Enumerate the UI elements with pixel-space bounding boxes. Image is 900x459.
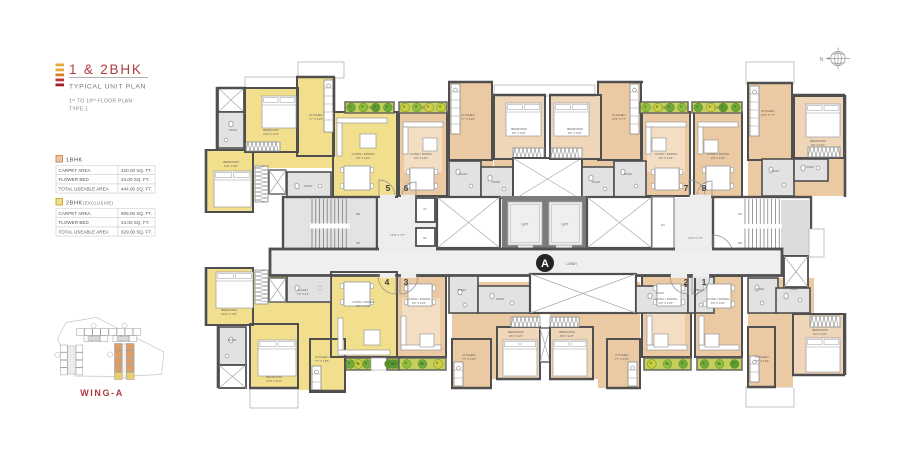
- svg-text:F.B.: F.B.: [421, 364, 425, 366]
- svg-text:7’7” X 13’5”: 7’7” X 13’5”: [315, 359, 329, 363]
- svg-text:7’7” X 13’5”: 7’7” X 13’5”: [461, 117, 475, 121]
- svg-text:TYPICAL UNIT PLAN: TYPICAL UNIT PLAN: [69, 84, 146, 91]
- svg-text:2BHK: 2BHK: [66, 201, 83, 207]
- svg-text:24.00 SQ. FT.: 24.00 SQ. FT.: [121, 177, 149, 182]
- svg-text:7’7” X 13’5”: 7’7” X 13’5”: [755, 359, 769, 363]
- svg-text:TOTAL USEABLE AREA: TOTAL USEABLE AREA: [59, 186, 110, 191]
- svg-text:3: 3: [404, 277, 409, 287]
- svg-text:TOILET: TOILET: [304, 185, 313, 188]
- svg-text:9’0” X 14’0”: 9’0” X 14’0”: [711, 156, 725, 160]
- svg-text:4: 4: [385, 277, 390, 287]
- svg-text:LOBBY: LOBBY: [566, 262, 578, 266]
- svg-text:9’6” X 11’0”: 9’6” X 11’0”: [560, 334, 574, 338]
- svg-text:LIFT: LIFT: [562, 223, 569, 227]
- svg-text:1ˢᵗ TO 19ᵗʰ FLOOR PLAN: 1ˢᵗ TO 19ᵗʰ FLOOR PLAN: [69, 99, 132, 105]
- svg-text:TOILET: TOILET: [771, 170, 780, 173]
- svg-text:TOILET: TOILET: [756, 288, 765, 291]
- svg-text:HV: HV: [661, 223, 665, 227]
- svg-text:TOILET: TOILET: [458, 289, 467, 292]
- svg-text:9’6” X 11’0”: 9’6” X 11’0”: [568, 131, 582, 135]
- svg-text:444.00 SQ. FT.: 444.00 SQ. FT.: [121, 186, 152, 191]
- svg-text:EF: EF: [423, 237, 427, 240]
- svg-text:9’0” X 14’0”: 9’0” X 14’0”: [659, 156, 673, 160]
- svg-text:F.B.: F.B.: [666, 364, 670, 366]
- svg-text:10’9” X 11’0”: 10’9” X 11’0”: [266, 379, 282, 383]
- svg-text:9’6” X 11’0”: 9’6” X 11’0”: [811, 143, 825, 147]
- svg-text:TOTAL USEABLE AREA: TOTAL USEABLE AREA: [59, 229, 110, 234]
- svg-text:1 & 2BHK: 1 & 2BHK: [69, 62, 143, 77]
- svg-text:9’0” X 14’0”: 9’0” X 14’0”: [412, 301, 426, 305]
- svg-text:629.00 SQ. FT.: 629.00 SQ. FT.: [121, 229, 152, 234]
- svg-text:TOILET: TOILET: [592, 181, 601, 184]
- svg-text:TOILET: TOILET: [492, 181, 501, 184]
- svg-text:7’7” X 13’5”: 7’7” X 13’5”: [462, 357, 476, 361]
- svg-text:7’9” X 4’1”: 7’9” X 4’1”: [297, 292, 310, 296]
- svg-text:TOILET: TOILET: [229, 129, 238, 132]
- svg-text:F.B.: F.B.: [357, 364, 361, 366]
- svg-text:FLOWER BED: FLOWER BED: [59, 220, 90, 225]
- svg-text:CF: CF: [423, 208, 427, 211]
- svg-text:9’6” X 11’0”: 9’6” X 11’0”: [509, 334, 523, 338]
- svg-text:A: A: [541, 258, 549, 270]
- svg-text:1BHK: 1BHK: [66, 158, 83, 164]
- svg-text:F.B.: F.B.: [662, 108, 666, 110]
- svg-text:UP: UP: [356, 241, 360, 245]
- svg-text:FLOWER BED: FLOWER BED: [59, 177, 90, 182]
- svg-text:605.00 SQ. FT.: 605.00 SQ. FT.: [121, 211, 152, 216]
- svg-text:14’8” X 7’5”: 14’8” X 7’5”: [688, 236, 703, 240]
- svg-text:9’0” X 14’0”: 9’0” X 14’0”: [414, 156, 428, 160]
- svg-text:7’7” X 13’5”: 7’7” X 13’5”: [615, 357, 629, 361]
- svg-text:7: 7: [684, 183, 689, 193]
- svg-text:11’0” X 9’6”: 11’0” X 9’6”: [224, 164, 238, 168]
- svg-text:UP: UP: [738, 212, 742, 216]
- svg-text:DN: DN: [738, 241, 742, 245]
- svg-text:TOILET: TOILET: [656, 292, 665, 295]
- svg-text:CARPET AREA: CARPET AREA: [59, 211, 92, 216]
- svg-text:F.B.: F.B.: [421, 108, 425, 110]
- svg-text:F.B.: F.B.: [715, 108, 719, 110]
- svg-text:9’0” X 14’0”: 9’0” X 14’0”: [356, 304, 370, 308]
- svg-text:CARPET AREA: CARPET AREA: [59, 168, 92, 173]
- svg-text:TOILET: TOILET: [806, 166, 815, 169]
- svg-text:N: N: [820, 57, 824, 63]
- svg-text:(EXCLUSIVE): (EXCLUSIVE): [83, 201, 114, 206]
- svg-text:14’8” X 7’5”: 14’8” X 7’5”: [390, 233, 405, 237]
- svg-text:TOILET: TOILET: [624, 173, 633, 176]
- svg-text:9’6” X 11’0”: 9’6” X 11’0”: [813, 332, 827, 336]
- svg-text:9’6” X 11’0”: 9’6” X 11’0”: [512, 131, 526, 135]
- svg-text:24.00 SQ. FT.: 24.00 SQ. FT.: [121, 220, 149, 225]
- svg-text:F.B.: F.B.: [368, 108, 372, 110]
- svg-text:7’7” X 13’5”: 7’7” X 13’5”: [309, 117, 323, 121]
- svg-text:F.B.: F.B.: [391, 364, 395, 366]
- svg-text:9’0” X 14’0”: 9’0” X 14’0”: [659, 301, 673, 305]
- svg-text:LIFT: LIFT: [522, 223, 529, 227]
- svg-text:DN: DN: [356, 212, 360, 216]
- svg-text:TYPE-1: TYPE-1: [69, 107, 88, 113]
- svg-text:13’5” X 7’7”: 13’5” X 7’7”: [612, 117, 626, 121]
- svg-text:TOILET: TOILET: [459, 173, 468, 176]
- svg-text:1: 1: [702, 277, 707, 287]
- svg-text:TOILET: TOILET: [790, 288, 799, 291]
- svg-text:9’0” X 14’0”: 9’0” X 14’0”: [356, 156, 370, 160]
- svg-text:13’5” X 7’7”: 13’5” X 7’7”: [761, 113, 775, 117]
- svg-text:TOILET: TOILET: [496, 298, 505, 301]
- svg-text:420.00 SQ. FT.: 420.00 SQ. FT.: [121, 168, 152, 173]
- svg-text:10’0” X 11’0”: 10’0” X 11’0”: [263, 132, 279, 136]
- svg-text:10’11” X 9’6”: 10’11” X 9’6”: [221, 312, 237, 316]
- svg-text:9’0” X 14’0”: 9’0” X 14’0”: [711, 301, 725, 305]
- svg-text:F.B.: F.B.: [718, 364, 722, 366]
- svg-text:TOILET: TOILET: [228, 339, 237, 342]
- svg-text:WING-A: WING-A: [80, 388, 124, 398]
